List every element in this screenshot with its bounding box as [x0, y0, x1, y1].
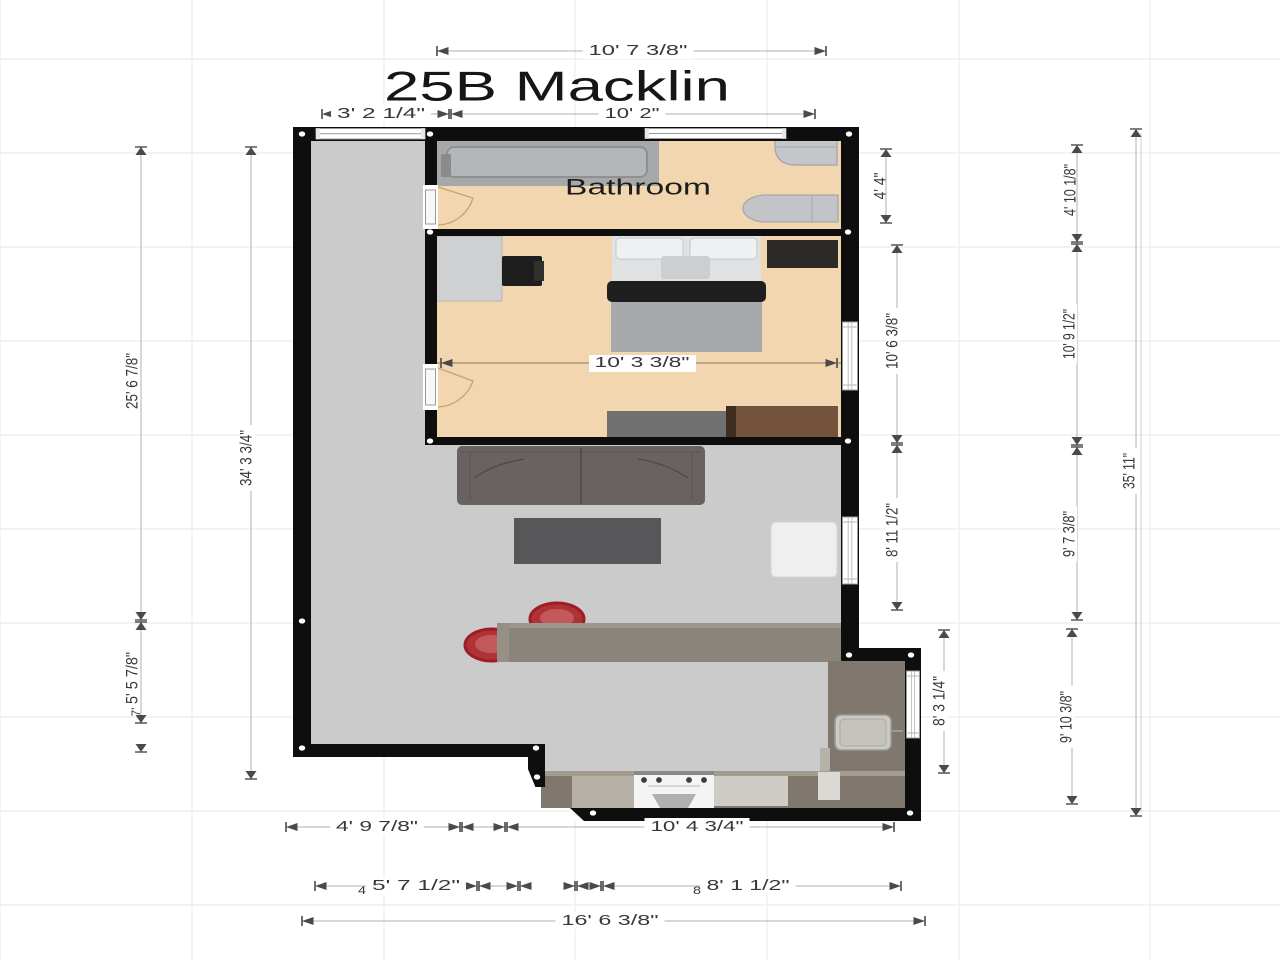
svg-text:8' 11 1/2": 8' 11 1/2" — [884, 503, 902, 557]
svg-text:8' 1 1/2": 8' 1 1/2" — [707, 878, 790, 894]
svg-text:4' 9 7/8": 4' 9 7/8" — [336, 819, 418, 835]
svg-text:8: 8 — [693, 885, 701, 897]
svg-text:16' 6 3/8": 16' 6 3/8" — [562, 913, 659, 929]
svg-text:9' 10 3/8": 9' 10 3/8" — [1058, 691, 1076, 743]
svg-text:4' 10 1/8": 4' 10 1/8" — [1062, 164, 1080, 216]
svg-text:10' 9 1/2": 10' 9 1/2" — [1061, 309, 1079, 359]
svg-text:35' 11": 35' 11" — [1121, 453, 1139, 489]
svg-text:25B Macklin: 25B Macklin — [384, 63, 730, 110]
svg-text:25' 6 7/8": 25' 6 7/8" — [124, 353, 142, 409]
svg-text:8' 3 1/4": 8' 3 1/4" — [931, 676, 949, 726]
svg-text:4' 4": 4' 4" — [872, 173, 890, 200]
svg-text:Bathroom: Bathroom — [565, 175, 711, 200]
svg-text:9' 7 3/8": 9' 7 3/8" — [1061, 511, 1079, 557]
svg-text:5' 7 1/2": 5' 7 1/2" — [372, 878, 460, 894]
svg-text:34' 3 3/4": 34' 3 3/4" — [238, 430, 256, 486]
svg-text:3' 2 1/4": 3' 2 1/4" — [337, 106, 425, 122]
svg-text:10' 4 3/4": 10' 4 3/4" — [651, 819, 744, 835]
svg-text:5' 5 7/8": 5' 5 7/8" — [124, 652, 142, 704]
svg-text:10' 2": 10' 2" — [605, 106, 660, 122]
svg-text:4: 4 — [358, 885, 366, 897]
svg-text:7': 7' — [131, 708, 143, 717]
svg-text:10' 6 3/8": 10' 6 3/8" — [884, 313, 902, 369]
svg-text:10' 7 3/8": 10' 7 3/8" — [589, 43, 688, 59]
svg-text:10' 3 3/8": 10' 3 3/8" — [595, 355, 690, 371]
